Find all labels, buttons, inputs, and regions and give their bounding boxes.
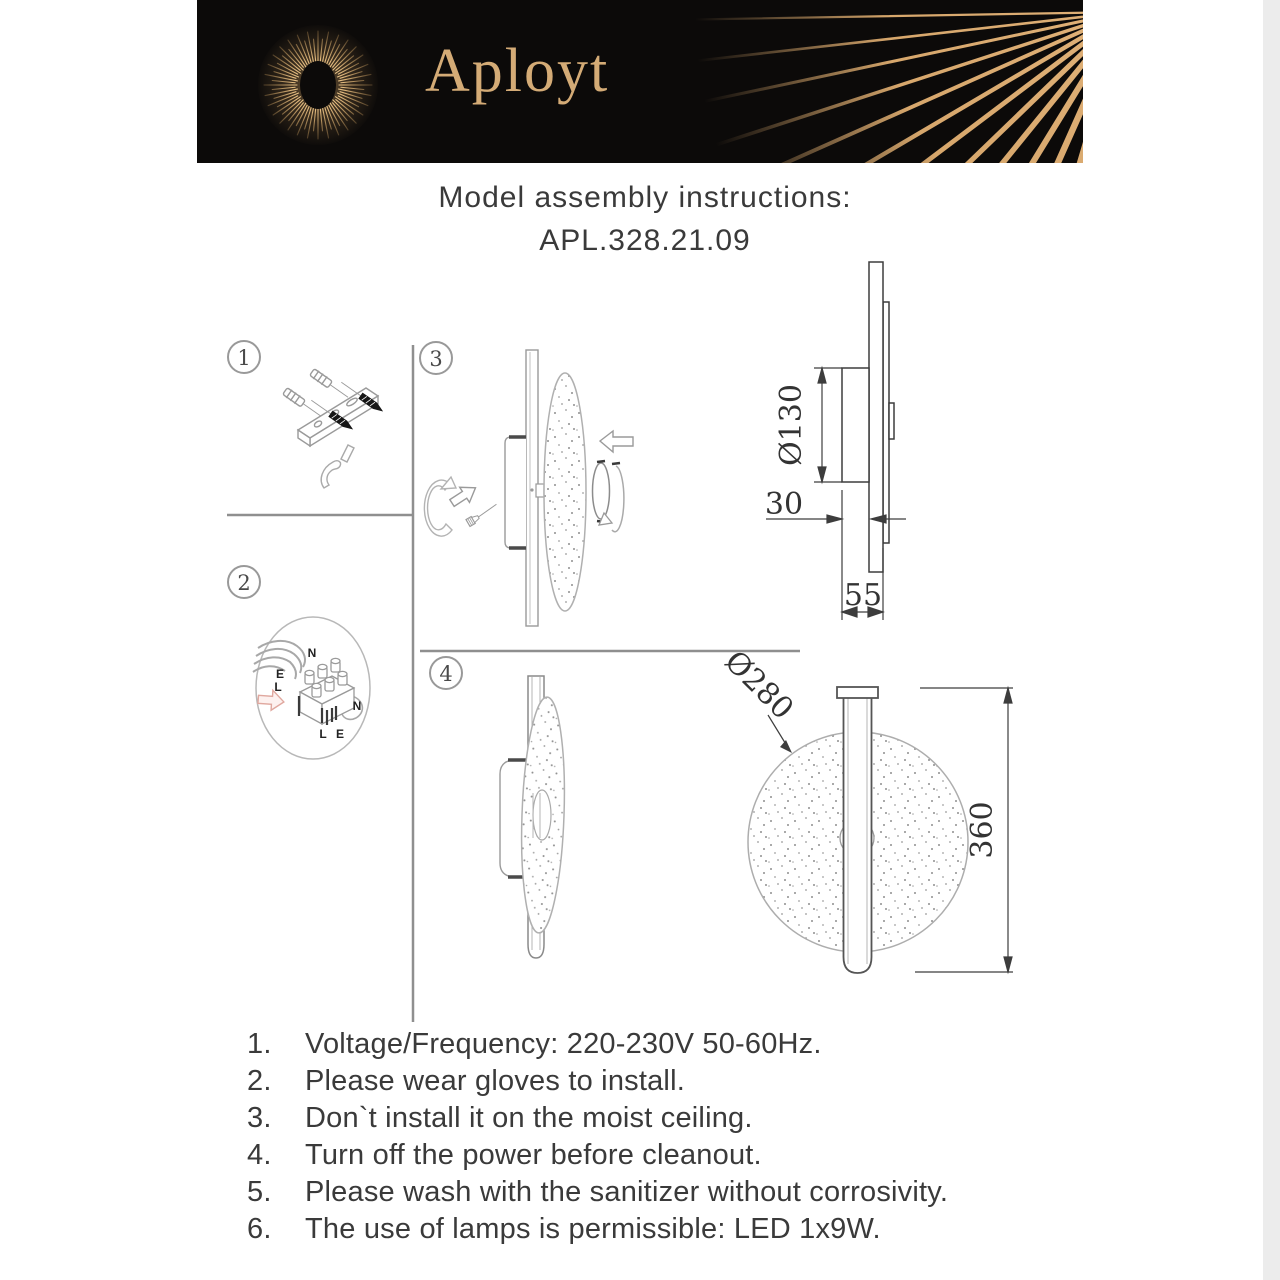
screw-icon bbox=[466, 503, 499, 527]
driver-box bbox=[505, 437, 526, 548]
item-number: 4. bbox=[247, 1137, 289, 1174]
dim-55-label: 55 bbox=[844, 578, 882, 613]
ring-rotate-arrowhead bbox=[599, 513, 612, 525]
wire-label-l-bottom: L bbox=[319, 727, 326, 741]
plate-protrusion bbox=[889, 403, 894, 439]
item-text: Don`t install it on the moist ceiling. bbox=[305, 1100, 753, 1137]
item-number: 2. bbox=[247, 1063, 289, 1100]
item-text: Turn off the power before cleanout. bbox=[305, 1137, 762, 1174]
ring-end-tick bbox=[597, 461, 605, 462]
step3-number: 3 bbox=[429, 347, 442, 371]
step2-number: 2 bbox=[237, 571, 250, 595]
dim-280-label: Ø280 bbox=[717, 644, 800, 727]
wire-label-l-left: L bbox=[274, 680, 281, 694]
hub-opening bbox=[533, 790, 551, 840]
ring-rotate-arrow-icon bbox=[612, 466, 624, 532]
dim-130 bbox=[814, 368, 842, 482]
rotate-arrow-icon bbox=[424, 477, 456, 536]
instruction-sheet: Aployt Model assembly instructions: APL.… bbox=[0, 0, 1280, 1280]
step1-number: 1 bbox=[237, 346, 250, 370]
dim-130-label: Ø130 bbox=[774, 384, 809, 466]
front-view-dimension-drawing: Ø280 360 bbox=[717, 644, 1013, 973]
item-number: 1. bbox=[247, 1026, 289, 1063]
ring-rotate-tick bbox=[612, 463, 620, 464]
item-number: 3. bbox=[247, 1100, 289, 1137]
step4-number: 4 bbox=[439, 662, 452, 686]
speckled-shade-disc bbox=[544, 373, 586, 611]
list-item: 2. Please wear gloves to install. bbox=[247, 1063, 1147, 1100]
item-number: 6. bbox=[247, 1211, 289, 1248]
instruction-list: 1. Voltage/Frequency: 220-230V 50-60Hz. … bbox=[247, 1026, 1147, 1248]
step4-assembled-diagram bbox=[500, 676, 568, 958]
list-item: 1. Voltage/Frequency: 220-230V 50-60Hz. bbox=[247, 1026, 1147, 1063]
slide-on-arrow-icon bbox=[600, 431, 633, 452]
wall-anchor-icon bbox=[282, 387, 324, 420]
dim-360-label: 360 bbox=[965, 801, 1000, 858]
step2-wiring-diagram: N E L N L E bbox=[253, 617, 370, 759]
connector-block bbox=[536, 484, 544, 497]
side-view-dimension-drawing: Ø130 30 55 bbox=[765, 262, 906, 620]
step1-bracket-diagram bbox=[282, 368, 383, 488]
item-text: Voltage/Frequency: 220-230V 50-60Hz. bbox=[305, 1026, 822, 1063]
dim-280-arrowhead bbox=[780, 740, 792, 753]
wire-label-n-right: N bbox=[353, 699, 362, 713]
step3-attach-diagram bbox=[424, 350, 633, 626]
item-text: The use of lamps is permissible: LED 1x9… bbox=[305, 1211, 881, 1248]
item-text: Please wash with the sanitizer without c… bbox=[305, 1174, 948, 1211]
scan-edge-shadow bbox=[1263, 0, 1280, 1280]
list-item: 5. Please wash with the sanitizer withou… bbox=[247, 1174, 1147, 1211]
dim-30-label: 30 bbox=[765, 487, 803, 522]
wire-label-e-left: E bbox=[276, 667, 284, 681]
retaining-ring bbox=[593, 463, 610, 519]
curved-part bbox=[321, 461, 340, 488]
item-text: Please wear gloves to install. bbox=[305, 1063, 685, 1100]
wire-label-n-top: N bbox=[308, 646, 317, 660]
small-part bbox=[341, 445, 354, 462]
shade-edge-view bbox=[869, 262, 883, 572]
tube-cap bbox=[837, 687, 878, 698]
item-number: 5. bbox=[247, 1174, 289, 1211]
back-plate bbox=[883, 302, 889, 543]
list-item: 3. Don`t install it on the moist ceiling… bbox=[247, 1100, 1147, 1137]
list-item: 6. The use of lamps is permissible: LED … bbox=[247, 1211, 1147, 1248]
center-screw-dot bbox=[530, 488, 533, 491]
list-item: 4. Turn off the power before cleanout. bbox=[247, 1137, 1147, 1174]
mount-box-side bbox=[842, 368, 869, 482]
wire-label-e-bottom: E bbox=[336, 727, 344, 741]
